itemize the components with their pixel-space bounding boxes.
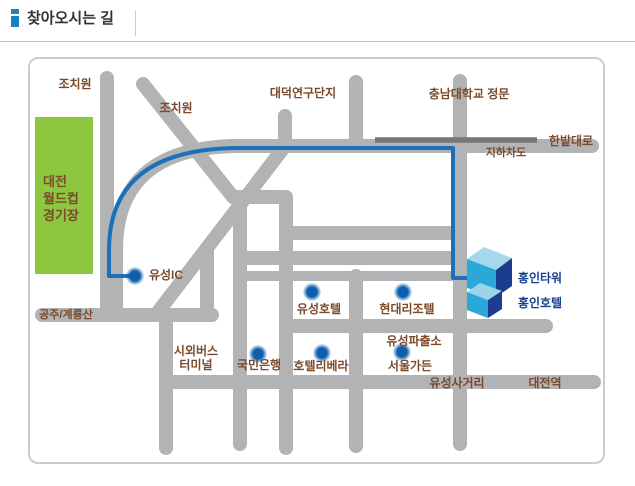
marker-hyundai-rizotel [392, 281, 414, 303]
label-worldcup-stadium: 대전 월드컵 경기장 [43, 173, 79, 224]
marker-yuseong-ic [124, 265, 146, 287]
map-canvas [0, 0, 635, 486]
marker-kookmin-bank [247, 343, 269, 365]
road-diagonal-southwest [158, 146, 285, 312]
hongin-building [467, 247, 512, 318]
marker-yuseong-hotel [301, 281, 323, 303]
marker-hotel-riviera [311, 342, 333, 364]
page: 찾아오시는 길 [0, 0, 635, 486]
marker-seoul-garden [391, 341, 413, 363]
